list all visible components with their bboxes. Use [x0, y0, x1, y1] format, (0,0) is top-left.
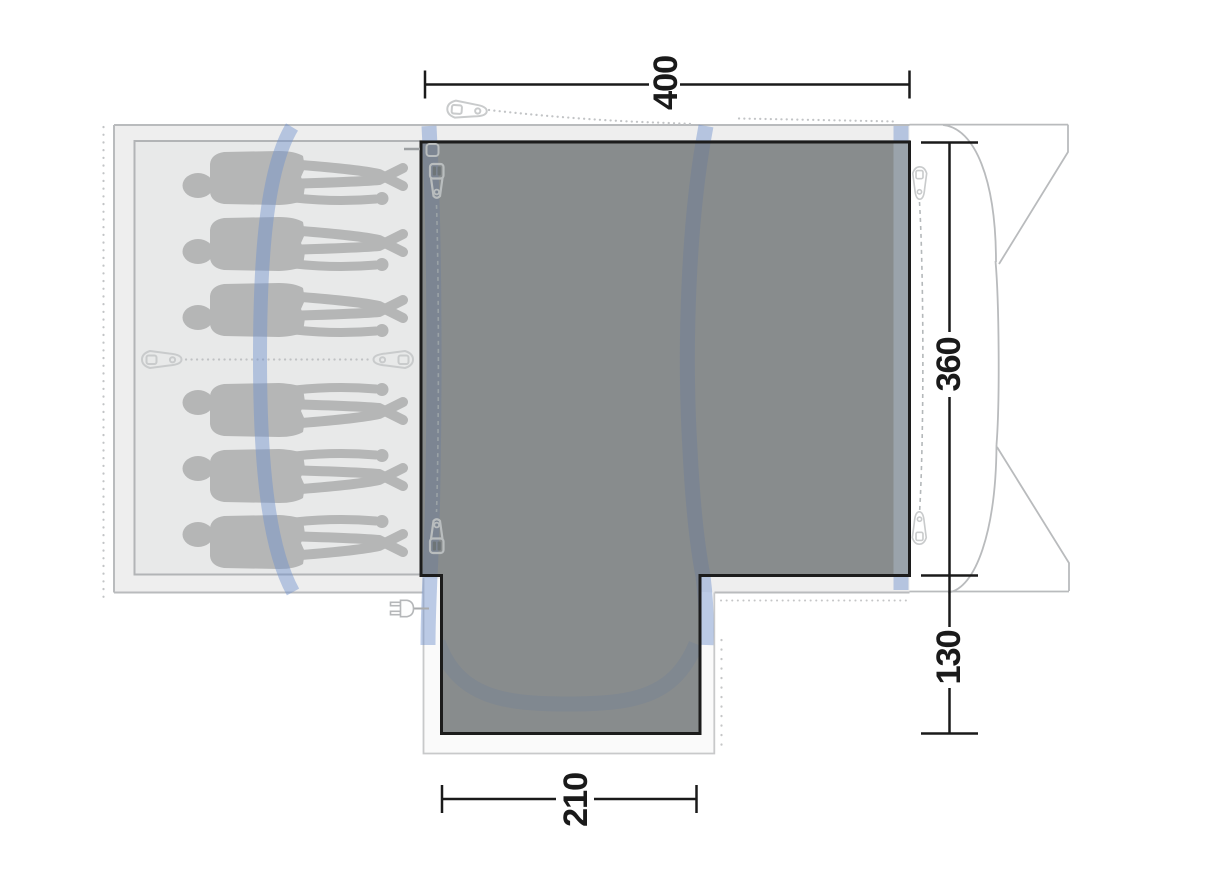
svg-text:130: 130 — [930, 631, 968, 685]
svg-text:360: 360 — [930, 338, 968, 392]
svg-text:210: 210 — [557, 773, 595, 827]
svg-text:400: 400 — [647, 56, 685, 110]
